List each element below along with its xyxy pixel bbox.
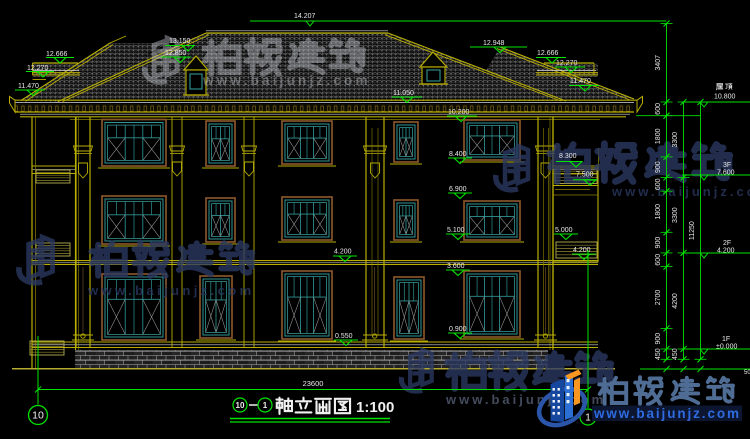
svg-text:11.050: 11.050 — [393, 90, 414, 97]
svg-text:3300: 3300 — [672, 132, 679, 148]
svg-text:3300: 3300 — [672, 207, 679, 223]
svg-text:10.200: 10.200 — [448, 109, 470, 116]
svg-text:1F: 1F — [722, 336, 730, 343]
svg-text:4200: 4200 — [672, 293, 679, 309]
svg-text:14.207: 14.207 — [294, 13, 316, 20]
svg-text:12.948: 12.948 — [483, 40, 505, 47]
svg-text:1800: 1800 — [655, 128, 662, 144]
svg-text:5.100: 5.100 — [447, 227, 465, 234]
svg-text:±0.000: ±0.000 — [716, 344, 737, 351]
svg-text:0.900: 0.900 — [449, 326, 467, 333]
svg-text:12.666: 12.666 — [537, 50, 559, 57]
svg-text:4.200: 4.200 — [334, 249, 352, 256]
svg-text:13.150: 13.150 — [169, 38, 191, 45]
svg-text:2700: 2700 — [655, 290, 662, 306]
svg-text:900: 900 — [655, 237, 662, 249]
svg-text:3407: 3407 — [655, 55, 662, 71]
svg-text:450: 450 — [655, 348, 662, 360]
svg-text:6.900: 6.900 — [449, 186, 467, 193]
svg-text:900: 900 — [655, 161, 662, 173]
svg-text:450: 450 — [672, 348, 679, 360]
svg-text:www.baijunjz.com: www.baijunjz.com — [593, 406, 741, 421]
svg-text:0.550: 0.550 — [335, 333, 353, 340]
svg-text:11.470: 11.470 — [18, 83, 39, 90]
svg-text:8.400: 8.400 — [449, 151, 467, 158]
svg-text:2F: 2F — [723, 240, 731, 247]
svg-text:1: 1 — [263, 401, 268, 410]
svg-text:1: 1 — [585, 413, 591, 424]
svg-text:4.200: 4.200 — [717, 248, 735, 255]
svg-text:www.baijunjz.com: www.baijunjz.com — [202, 73, 371, 88]
svg-text:7.500: 7.500 — [576, 172, 594, 179]
svg-text:23600: 23600 — [303, 379, 324, 388]
svg-text:7.600: 7.600 — [717, 170, 735, 177]
svg-text:600: 600 — [655, 103, 662, 115]
svg-text:8.300: 8.300 — [559, 153, 577, 160]
svg-text:10: 10 — [236, 401, 245, 410]
svg-text:600: 600 — [655, 254, 662, 266]
svg-text:900: 900 — [655, 333, 662, 345]
svg-text:www.baijunjz.com: www.baijunjz.com — [87, 283, 255, 298]
svg-text:11.470: 11.470 — [570, 78, 591, 85]
svg-text:5.000: 5.000 — [555, 227, 573, 234]
svg-text:11250: 11250 — [689, 221, 696, 240]
svg-text:10.800: 10.800 — [714, 94, 736, 101]
svg-text:10: 10 — [32, 410, 44, 422]
svg-text:3F: 3F — [723, 162, 731, 169]
svg-text:www.baijunjz.com: www.baijunjz.com — [611, 184, 750, 199]
svg-text:3.600: 3.600 — [447, 263, 465, 270]
svg-text:12.270: 12.270 — [556, 60, 578, 67]
svg-text:12.850: 12.850 — [165, 50, 187, 57]
svg-text:600: 600 — [655, 178, 662, 190]
svg-text:1:100: 1:100 — [356, 399, 394, 416]
svg-text:50: 50 — [744, 370, 750, 376]
svg-text:1800: 1800 — [655, 204, 662, 220]
